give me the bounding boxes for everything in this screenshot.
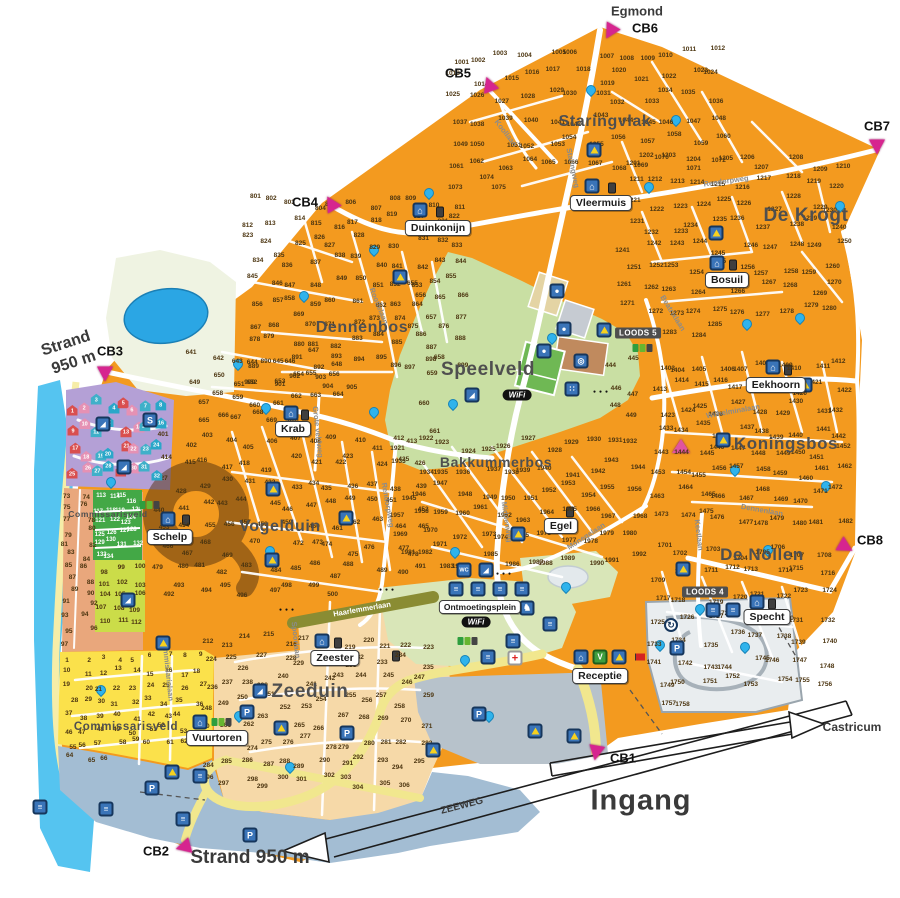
caption-zeeweg: ZEEWEG	[440, 795, 485, 817]
playground-slide-icon: ◢	[121, 593, 136, 608]
pitch-number: 126	[107, 530, 117, 536]
pitch-number: 1266	[731, 289, 745, 296]
pitch-number: 1942	[591, 468, 605, 475]
pitch-number: 222	[400, 643, 411, 650]
pitch-number: 1060	[716, 134, 730, 141]
pitch-number: 1751	[703, 679, 717, 686]
pitch-number: 39	[96, 713, 103, 720]
facility-icon: ≡	[515, 582, 530, 597]
pitch-number: 468	[200, 540, 211, 547]
flag-icon	[635, 654, 645, 661]
pitch-number: 813	[265, 221, 276, 228]
pitch-number: 1011	[682, 47, 696, 54]
pitch-number: 295	[414, 759, 425, 766]
pitch-number: 1712	[725, 565, 739, 572]
pitch-number: 297	[218, 781, 229, 788]
pitch-number: 1476	[710, 515, 724, 522]
pitch-number: 1031	[596, 91, 610, 98]
pitch-number: 867	[250, 324, 261, 331]
pitch-number: 1032	[610, 100, 624, 107]
pitch-number: 647	[308, 348, 319, 355]
facility-icon: ≡	[449, 582, 464, 597]
pitch-number: 103	[135, 583, 146, 590]
pitch-number: 656	[415, 293, 426, 300]
pitch-number: 1953	[561, 481, 575, 488]
pitch-number: 819	[386, 212, 397, 219]
pitch-number: 1025	[446, 91, 460, 98]
pitch-number: 1960	[455, 511, 469, 518]
pitch-number: 1965	[562, 507, 576, 514]
pitch-number: 270	[401, 717, 412, 724]
pitch-number: 1463	[650, 494, 664, 501]
pitch-number: 121	[95, 518, 105, 524]
pitch-number: 659	[427, 371, 438, 378]
pitch-number: 493	[174, 583, 185, 590]
pitch-number: 225	[226, 655, 237, 662]
pitch-number: 1444	[674, 450, 688, 457]
pitch-number: 811	[455, 205, 466, 212]
pitch-number: 130	[106, 537, 116, 543]
pitch-number: 1218	[786, 173, 800, 180]
pitch-number: 55	[69, 745, 76, 752]
pitch-number: 1064	[523, 157, 537, 164]
pitch-number: 1963	[516, 518, 530, 525]
pitch-number: 1241	[615, 248, 629, 255]
pitch-number: 1267	[762, 280, 776, 287]
pitch-number: 1959	[433, 510, 447, 517]
pitch-number: 1925	[481, 447, 495, 454]
pitch-number: 416	[196, 458, 207, 465]
pitch-number: 1226	[737, 201, 751, 208]
pitch-number: 438	[390, 487, 401, 494]
pitch-number: 1263	[662, 286, 676, 293]
pitch-number: 1411	[816, 363, 830, 370]
cb-marker-cb5: CB5	[445, 66, 471, 81]
water-tap-icon	[559, 580, 573, 594]
pitch-number: 95	[65, 629, 72, 636]
pitch-number: 1429	[776, 411, 790, 418]
pitch-number: 1027	[495, 99, 509, 106]
pitch-number: 487	[330, 574, 341, 581]
pitch-number: 1002	[471, 58, 485, 65]
pitch-number: 1473	[654, 512, 668, 519]
pitch-number: 1724	[822, 588, 836, 595]
pitch-number: 212	[202, 639, 213, 646]
tent-pitch-icon	[156, 636, 171, 651]
pitch-number: 446	[282, 507, 293, 514]
cb-marker-cb4: CB4	[292, 195, 318, 210]
pitch-number: 129	[95, 540, 105, 546]
area-label-speelveld: Speelveld	[441, 359, 535, 381]
pitch-number: 1068	[612, 166, 626, 173]
pitch-number: 9	[199, 651, 203, 658]
pitch-number: 1478	[754, 520, 768, 527]
tent-pitch-icon	[612, 650, 627, 665]
pitch-number: 109	[129, 608, 140, 615]
pitch-number: 1456	[712, 465, 726, 472]
pitch-number: 1007	[600, 54, 614, 61]
pitch-number: 878	[249, 336, 260, 343]
pitch-number: 1244	[693, 239, 707, 246]
pitch-number: 845	[247, 274, 258, 281]
pitch-number: 1254	[689, 269, 703, 276]
pitch-number: 1956	[627, 487, 641, 494]
pitch-number: 650	[214, 373, 225, 380]
pitch-number: 1283	[662, 329, 676, 336]
pitch-number: 20	[86, 686, 93, 693]
pitch-number: 57	[94, 741, 101, 748]
playground-slide-icon: ◢	[465, 388, 480, 403]
pitch-number: 1466	[711, 493, 725, 500]
pitch-number: 474	[321, 542, 332, 549]
pitch-number: 1207	[754, 164, 768, 171]
badge-receptie: Receptie	[572, 668, 628, 684]
pitch-number: 455	[205, 523, 216, 530]
pitch-number: 104	[100, 592, 111, 599]
area-label-commissarisveld: Commissarisveld	[74, 721, 178, 733]
pitch-number: 662	[291, 394, 302, 401]
pitch-number: 1717	[656, 596, 670, 603]
pitch-number: 1071	[686, 165, 700, 172]
pitch-number: 485	[290, 566, 301, 573]
pitch-number: 1961	[473, 505, 487, 512]
pitch-number: 263	[257, 714, 268, 721]
parking-icon: P	[670, 641, 685, 656]
pitch-number: 12	[100, 671, 107, 678]
pitch-number: 15	[146, 672, 153, 679]
pitch-number: 1407	[733, 367, 747, 374]
pitch-number: 73	[63, 494, 70, 501]
pitch-number: 854	[429, 278, 440, 285]
pitch-number: 655	[306, 370, 317, 377]
pitch-number: 56	[79, 743, 86, 750]
pitch-number: 802	[266, 196, 277, 203]
pitch-number: 123	[121, 520, 131, 526]
pitch-number: 1275	[713, 306, 727, 313]
pitch-number: 1737	[748, 633, 762, 640]
cb-triangle-cb7	[869, 140, 885, 155]
pitch-number: 643	[232, 358, 243, 365]
pitch-number: 412	[393, 435, 404, 442]
pitch-number: 428	[176, 489, 187, 496]
pitch-number: 23	[129, 686, 136, 693]
pitch-number: 1741	[647, 660, 661, 667]
pitch-number: 877	[456, 315, 467, 322]
tent-pitch-icon	[587, 143, 602, 158]
pitch-number: 110	[100, 619, 111, 626]
pitch-number: 446	[611, 386, 622, 393]
pitch-number: 1742	[678, 661, 692, 668]
pitch-number: 860	[324, 297, 335, 304]
pitch-number: 445	[270, 501, 281, 508]
barrier-dots-icon: ●●●	[379, 587, 397, 593]
pitch-number: 666	[218, 413, 229, 420]
pitch-number: 299	[257, 784, 268, 791]
pitch-number: 434	[308, 481, 319, 488]
pitch-number: 832	[438, 238, 449, 245]
reception-house-icon: ⌂	[574, 650, 589, 665]
sports-ball-icon: ●	[550, 284, 565, 299]
pitch-number: 903	[315, 374, 326, 381]
pitch-number: 490	[398, 570, 409, 577]
pitch-number: 86	[80, 563, 87, 570]
pitch-number: 442	[204, 500, 215, 507]
pitch-number: 839	[350, 254, 361, 261]
barrier-dots-icon: ●●●	[496, 571, 514, 577]
pitch-number: 100	[135, 563, 146, 570]
pitch-number: 32	[132, 700, 139, 707]
pitch-number: 401	[158, 432, 169, 439]
pitch-number: 658	[212, 390, 223, 397]
waste-bin-icon	[608, 183, 616, 194]
pitch-number: 1750	[670, 680, 684, 687]
badge-vleermuis: Vleermuis	[570, 195, 632, 211]
pitch-number: 282	[395, 740, 406, 747]
pitch-number: 1985	[484, 552, 498, 559]
area-label-staringvlak: Staringvlak	[559, 113, 652, 131]
pitch-number: 1220	[829, 183, 843, 190]
pitch-number: 1202	[639, 153, 653, 160]
pitch-number: 44	[173, 712, 180, 719]
darts-icon: ◎	[574, 354, 589, 369]
pitch-number: 1062	[470, 159, 484, 166]
pitch-number: 665	[199, 418, 210, 425]
pitch-number: 885	[391, 340, 402, 347]
pitch-number: 495	[220, 583, 231, 590]
pitch-number: 277	[300, 734, 311, 741]
pitch-number: 414	[161, 455, 172, 462]
pitch-number: 1259	[802, 270, 816, 277]
beach-house-icon: 7	[140, 400, 151, 411]
pitch-number: 448	[610, 403, 621, 410]
pitch-number: 234	[395, 653, 406, 660]
sanitair-icon: ⌂	[193, 715, 208, 730]
pitch-number: 1433	[659, 425, 673, 432]
road-label-keetlaan: Keetlaan	[693, 519, 706, 551]
pitch-number: 1	[65, 658, 69, 665]
pitch-number: 287	[263, 762, 274, 769]
pitch-number: 646	[285, 358, 296, 365]
pitch-number: 1969	[393, 532, 407, 539]
pitch-number: 1718	[671, 597, 685, 604]
pitch-number: 836	[282, 263, 293, 270]
pitch-number: 1036	[709, 99, 723, 106]
pitch-number: 22	[113, 685, 120, 692]
pitch-number: 1277	[755, 312, 769, 319]
badge-duinkonijn: Duinkonijn	[405, 220, 471, 236]
pitch-number: 288	[279, 759, 290, 766]
pitch-number: 1991	[605, 558, 619, 565]
pitch-number: 809	[405, 196, 416, 203]
beach-house-icon: 17	[70, 443, 81, 454]
pitch-number: 469	[222, 553, 233, 560]
pitch-number: 1713	[744, 567, 758, 574]
pitch-number: 402	[186, 443, 197, 450]
cb-marker-cb3: CB3	[97, 344, 123, 359]
pitch-number: 1262	[644, 285, 658, 292]
pitch-number: 1986	[505, 561, 519, 568]
pitch-number: 268	[359, 715, 370, 722]
pitch-number: 659	[232, 394, 243, 401]
pitch-number: 661	[429, 428, 440, 435]
pitch-number: 2	[87, 658, 91, 665]
badge-zeester: Zeester	[310, 650, 359, 666]
pitch-number: 1022	[662, 74, 676, 81]
pitch-number: 1073	[448, 185, 462, 192]
pitch-number: 1480	[792, 521, 806, 528]
beach-house-icon: 2	[79, 402, 90, 413]
pitch-number: 825	[295, 241, 306, 248]
playground-slide-icon: ◢	[479, 563, 494, 578]
pitch-number: 893	[331, 353, 342, 360]
pitch-number: 447	[306, 503, 317, 510]
pitch-number: 880	[294, 341, 305, 348]
pitch-number: 847	[284, 283, 295, 290]
pitch-number: 1932	[623, 439, 637, 446]
pitch-number: 1056	[611, 135, 625, 142]
pitch-number: 1037	[453, 120, 467, 127]
area-label-vogelduin: Vogelduin	[239, 518, 321, 536]
pitch-number: 423	[342, 453, 353, 460]
road-label-spoorlaan: Spoorlaan	[290, 621, 303, 658]
pitch-number: 890	[261, 358, 272, 365]
pitch-number: 1260	[825, 264, 839, 271]
playground-slide-icon: ◢	[117, 460, 132, 475]
beach-house-icon: 18	[81, 451, 92, 462]
pitch-number: 13	[115, 665, 122, 672]
pitch-number: 289	[293, 763, 304, 770]
sanitair-icon: ⌂	[766, 360, 781, 375]
pitch-number: 1047	[686, 119, 700, 126]
pitch-number: 302	[324, 772, 335, 779]
pitch-number: 1934	[419, 470, 433, 477]
cb-triangle-cb8	[836, 536, 857, 557]
pitch-number: 830	[388, 243, 399, 250]
pitch-number: 26	[181, 686, 188, 693]
pitch-number: 240	[278, 674, 289, 681]
pitch-number: 66	[100, 756, 107, 763]
pitch-number: 1459	[773, 471, 787, 478]
pitch-number: 449	[626, 413, 637, 420]
road-label-staringweg: Staringweg	[564, 147, 581, 188]
pitch-number: 1048	[712, 116, 726, 123]
pitch-number: 1715	[789, 565, 803, 572]
pitch-number: 1404	[670, 367, 684, 374]
pitch-number: 1434	[674, 428, 688, 435]
pitch-number: 257	[376, 692, 387, 699]
pitch-number: 1992	[632, 551, 646, 558]
facility-icon: ≡	[706, 603, 721, 618]
pitch-number: 644	[247, 360, 258, 367]
pitch-number: 285	[221, 759, 232, 766]
pitch-number: 10	[63, 668, 70, 675]
pitch-number: 17	[181, 673, 188, 680]
pitch-number: 46	[65, 729, 72, 736]
pitch-number: 844	[455, 259, 466, 266]
pitch-number: 801	[250, 193, 261, 200]
first-aid-icon: +	[508, 651, 523, 666]
pitch-number: 1947	[433, 481, 447, 488]
recycling-bins-icon	[140, 501, 161, 509]
barrier-dots-icon: ●●●	[279, 607, 297, 613]
pitch-number: 4	[118, 658, 122, 665]
pitch-number: 1743	[704, 665, 718, 672]
pitch-number: 1285	[708, 322, 722, 329]
pitch-number: 58	[119, 740, 126, 747]
pitch-number: 1732	[821, 617, 835, 624]
pitch-number: 79	[65, 533, 72, 540]
pitch-number: 303	[340, 774, 351, 781]
pitch-number: 1228	[786, 194, 800, 201]
caption-egmond: Egmond	[611, 4, 663, 19]
badge-loods-4: LOODS 4	[682, 587, 728, 598]
pitch-number: 1232	[644, 230, 658, 237]
pitch-number: 406	[267, 439, 278, 446]
pitch-number: 816	[334, 225, 345, 232]
pitch-number: 450	[367, 497, 378, 504]
pitch-number: 1211	[630, 177, 644, 184]
pitch-number: 1469	[774, 497, 788, 504]
pitch-number: 1979	[599, 530, 613, 537]
pitch-number: 1257	[754, 271, 768, 278]
pitch-number: 1276	[730, 310, 744, 317]
tent-pitch-icon	[676, 562, 691, 577]
pitch-number: 1034	[658, 88, 672, 95]
pitch-number: 131	[117, 542, 127, 548]
pitch-number: 461	[332, 526, 343, 533]
pitch-number: 40	[113, 712, 120, 719]
waste-bin-icon	[729, 260, 737, 271]
pitch-number: 236	[207, 684, 218, 691]
pitch-number: 1739	[791, 640, 805, 647]
pitch-number: 269	[378, 715, 389, 722]
pitch-number: 1054	[562, 134, 576, 141]
pitch-number: 824	[260, 239, 271, 246]
pitch-number: 87	[69, 575, 76, 582]
pitch-number: 42	[148, 711, 155, 718]
beach-house-icon: 24	[151, 439, 162, 450]
pitch-number: 246	[402, 680, 413, 687]
pitch-number: 215	[263, 632, 274, 639]
pitch-number: 31	[110, 701, 117, 708]
sanitair-icon: ⌂	[750, 595, 765, 610]
pitch-number: 1930	[587, 437, 601, 444]
pitch-number: 294	[392, 765, 403, 772]
cb-marker-cb8: CB8	[857, 533, 883, 548]
pitch-number: 1453	[651, 470, 665, 477]
pitch-number: 1481	[809, 520, 823, 527]
pitch-number: 1972	[453, 535, 467, 542]
pitch-number: 226	[238, 665, 249, 672]
pitch-number: 483	[241, 563, 252, 570]
pitch-number: 305	[379, 781, 390, 788]
pitch-number: 858	[284, 295, 295, 302]
pitch-number: 649	[189, 380, 200, 387]
pitch-number: 1203	[661, 153, 675, 160]
pitch-number: 286	[242, 758, 253, 765]
pitch-number: 34	[160, 702, 167, 709]
pitch-number: 887	[426, 345, 437, 352]
pitch-number: 1725	[650, 620, 664, 627]
pitch-number: 1981	[401, 550, 415, 557]
pitch-number: 233	[377, 660, 388, 667]
pitch-number: 409	[325, 434, 336, 441]
sports-ball-icon: ●	[557, 322, 572, 337]
pitch-number: 1443	[654, 449, 668, 456]
beach-house-icon: 20	[102, 448, 113, 459]
pitch-number: 418	[239, 461, 250, 468]
area-label-dennenbos: Dennenbos	[316, 319, 409, 337]
